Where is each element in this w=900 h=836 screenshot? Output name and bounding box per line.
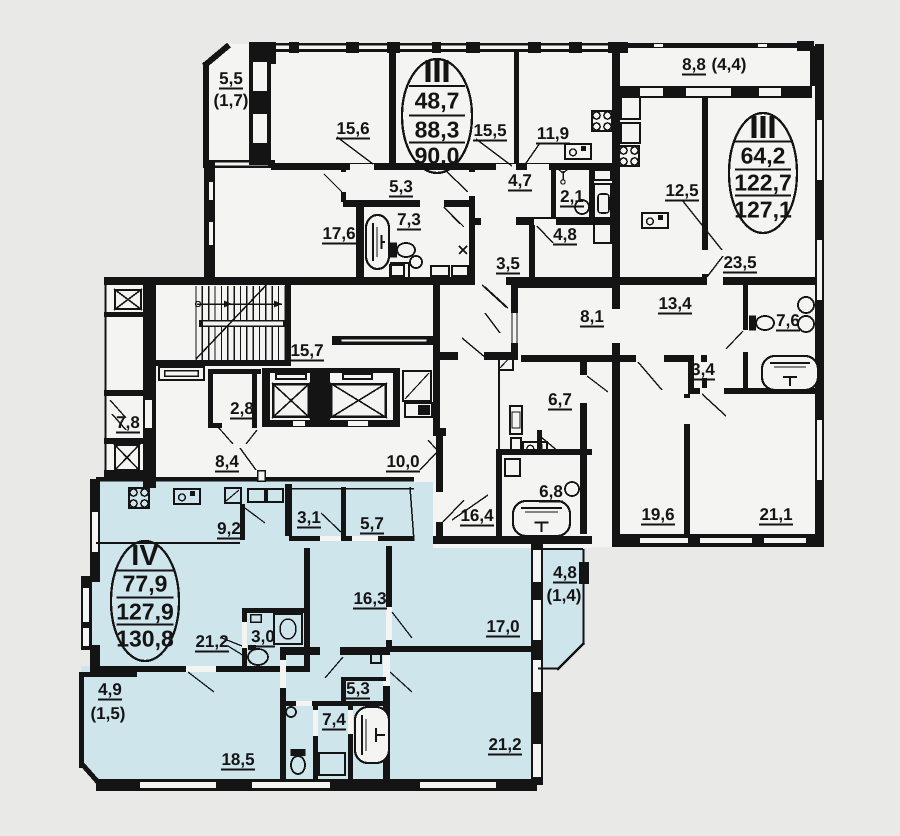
svg-text:16,4: 16,4: [460, 506, 494, 525]
svg-text:8,1: 8,1: [580, 307, 604, 326]
svg-text:13,4: 13,4: [658, 294, 692, 313]
svg-text:21,2: 21,2: [195, 632, 228, 651]
svg-text:5,7: 5,7: [360, 514, 384, 533]
svg-text:IV: IV: [131, 540, 159, 572]
svg-text:17,0: 17,0: [486, 617, 519, 636]
svg-text:88,3: 88,3: [415, 117, 460, 143]
svg-text:90,0: 90,0: [415, 143, 460, 169]
svg-text:4,9: 4,9: [98, 680, 122, 699]
svg-text:3,4: 3,4: [691, 360, 715, 379]
svg-text:3,0: 3,0: [251, 627, 275, 646]
svg-text:23,5: 23,5: [723, 253, 756, 272]
svg-text:(1,4): (1,4): [547, 586, 582, 605]
svg-text:5,5: 5,5: [219, 69, 243, 88]
svg-text:2,8: 2,8: [230, 399, 254, 418]
svg-text:6,8: 6,8: [539, 482, 563, 501]
svg-text:130,8: 130,8: [116, 626, 174, 652]
svg-text:(4,4): (4,4): [712, 55, 747, 74]
svg-text:7,6: 7,6: [776, 311, 800, 330]
svg-text:127,1: 127,1: [734, 197, 792, 223]
svg-text:15,7: 15,7: [290, 341, 323, 360]
svg-text:5,3: 5,3: [389, 177, 413, 196]
svg-text:3,1: 3,1: [297, 508, 321, 527]
svg-text:4,8: 4,8: [553, 225, 577, 244]
svg-text:16,3: 16,3: [353, 589, 386, 608]
svg-text:3,5: 3,5: [496, 254, 520, 273]
svg-text:19,6: 19,6: [641, 505, 674, 524]
svg-text:(1,5): (1,5): [91, 704, 126, 723]
svg-text:10,0: 10,0: [386, 452, 419, 471]
svg-text:2,1: 2,1: [560, 187, 584, 206]
svg-text:48,7: 48,7: [415, 88, 460, 114]
svg-text:15,6: 15,6: [336, 119, 369, 138]
svg-text:15,5: 15,5: [473, 121, 506, 140]
svg-text:12,5: 12,5: [665, 181, 698, 200]
svg-text:77,9: 77,9: [123, 571, 168, 597]
svg-text:4,8: 4,8: [553, 563, 577, 582]
svg-text:7,8: 7,8: [116, 413, 140, 432]
svg-text:127,9: 127,9: [116, 599, 174, 625]
svg-text:7,3: 7,3: [397, 210, 421, 229]
svg-text:6,7: 6,7: [548, 390, 572, 409]
svg-text:4,7: 4,7: [508, 171, 532, 190]
svg-text:8,8: 8,8: [682, 55, 706, 74]
svg-text:64,2: 64,2: [741, 143, 786, 169]
svg-text:5,3: 5,3: [346, 679, 370, 698]
svg-text:11,9: 11,9: [537, 124, 569, 143]
svg-text:(1,7): (1,7): [214, 91, 249, 110]
svg-text:21,1: 21,1: [759, 505, 792, 524]
svg-text:9,2: 9,2: [217, 519, 241, 538]
svg-text:17,6: 17,6: [322, 224, 355, 243]
svg-text:122,7: 122,7: [734, 170, 792, 196]
svg-text:21,2: 21,2: [488, 735, 521, 754]
svg-text:8,4: 8,4: [215, 452, 239, 471]
svg-text:7,4: 7,4: [322, 710, 346, 729]
svg-text:18,5: 18,5: [221, 750, 254, 769]
